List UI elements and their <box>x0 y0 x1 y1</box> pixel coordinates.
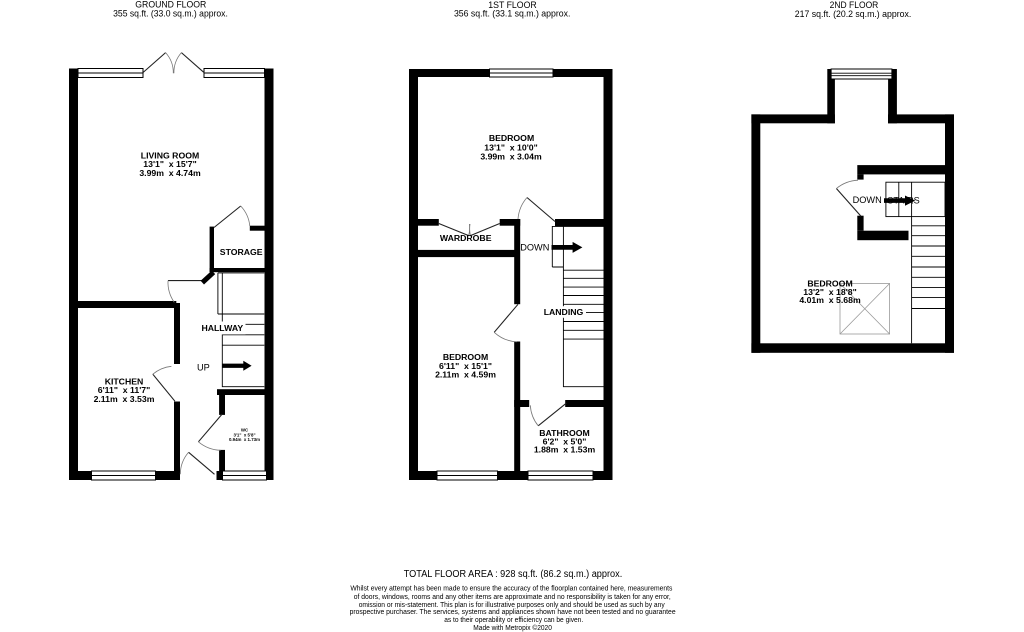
svg-text:4.01m x 5.68m: 4.01m x 5.68m <box>799 295 861 305</box>
svg-text:LANDING: LANDING <box>544 307 584 317</box>
svg-text:2.11m x 3.53m: 2.11m x 3.53m <box>94 394 155 404</box>
svg-text:omission or mis-statement. Thi: omission or mis-statement. This plan is … <box>359 602 665 609</box>
svg-text:0.94m x 1.73m: 0.94m x 1.73m <box>229 437 260 442</box>
svg-text:UP: UP <box>197 363 210 373</box>
svg-text:Made with Metropix ©2020: Made with Metropix ©2020 <box>473 624 552 632</box>
svg-text:STORAGE: STORAGE <box>220 247 263 257</box>
svg-text:prospective purchaser. The ser: prospective purchaser. The services, sys… <box>350 609 676 616</box>
svg-text:356 sq.ft. (33.1 sq.m.) approx: 356 sq.ft. (33.1 sq.m.) approx. <box>454 8 571 18</box>
svg-text:as to their operability or eff: as to their operability or efficiency ca… <box>444 617 583 624</box>
svg-text:217 sq.ft. (20.2 sq.m.) approx: 217 sq.ft. (20.2 sq.m.) approx. <box>795 9 912 19</box>
svg-text:DOWN: DOWN <box>520 243 549 253</box>
svg-text:TOTAL FLOOR AREA : 928 sq.ft.: TOTAL FLOOR AREA : 928 sq.ft. (86.2 sq.m… <box>404 569 623 580</box>
svg-text:2.11m x 4.59m: 2.11m x 4.59m <box>435 369 496 379</box>
svg-text:HALLWAY: HALLWAY <box>201 323 243 333</box>
svg-text:BEDROOM: BEDROOM <box>489 133 534 143</box>
svg-text:1.88m x 1.53m: 1.88m x 1.53m <box>534 445 596 455</box>
svg-text:Whilst every attempt has been: Whilst every attempt has been made to en… <box>350 586 672 593</box>
svg-text:of doors, windows, rooms and a: of doors, windows, rooms and any other i… <box>354 594 671 601</box>
svg-text:WARDROBE: WARDROBE <box>440 233 492 243</box>
svg-text:3.99m x 3.04m: 3.99m x 3.04m <box>480 151 542 161</box>
svg-text:DOWN: DOWN <box>853 195 882 205</box>
svg-text:3.99m x 4.74m: 3.99m x 4.74m <box>139 168 201 178</box>
svg-text:355 sq.ft. (33.0 sq.m.) approx: 355 sq.ft. (33.0 sq.m.) approx. <box>113 9 228 19</box>
